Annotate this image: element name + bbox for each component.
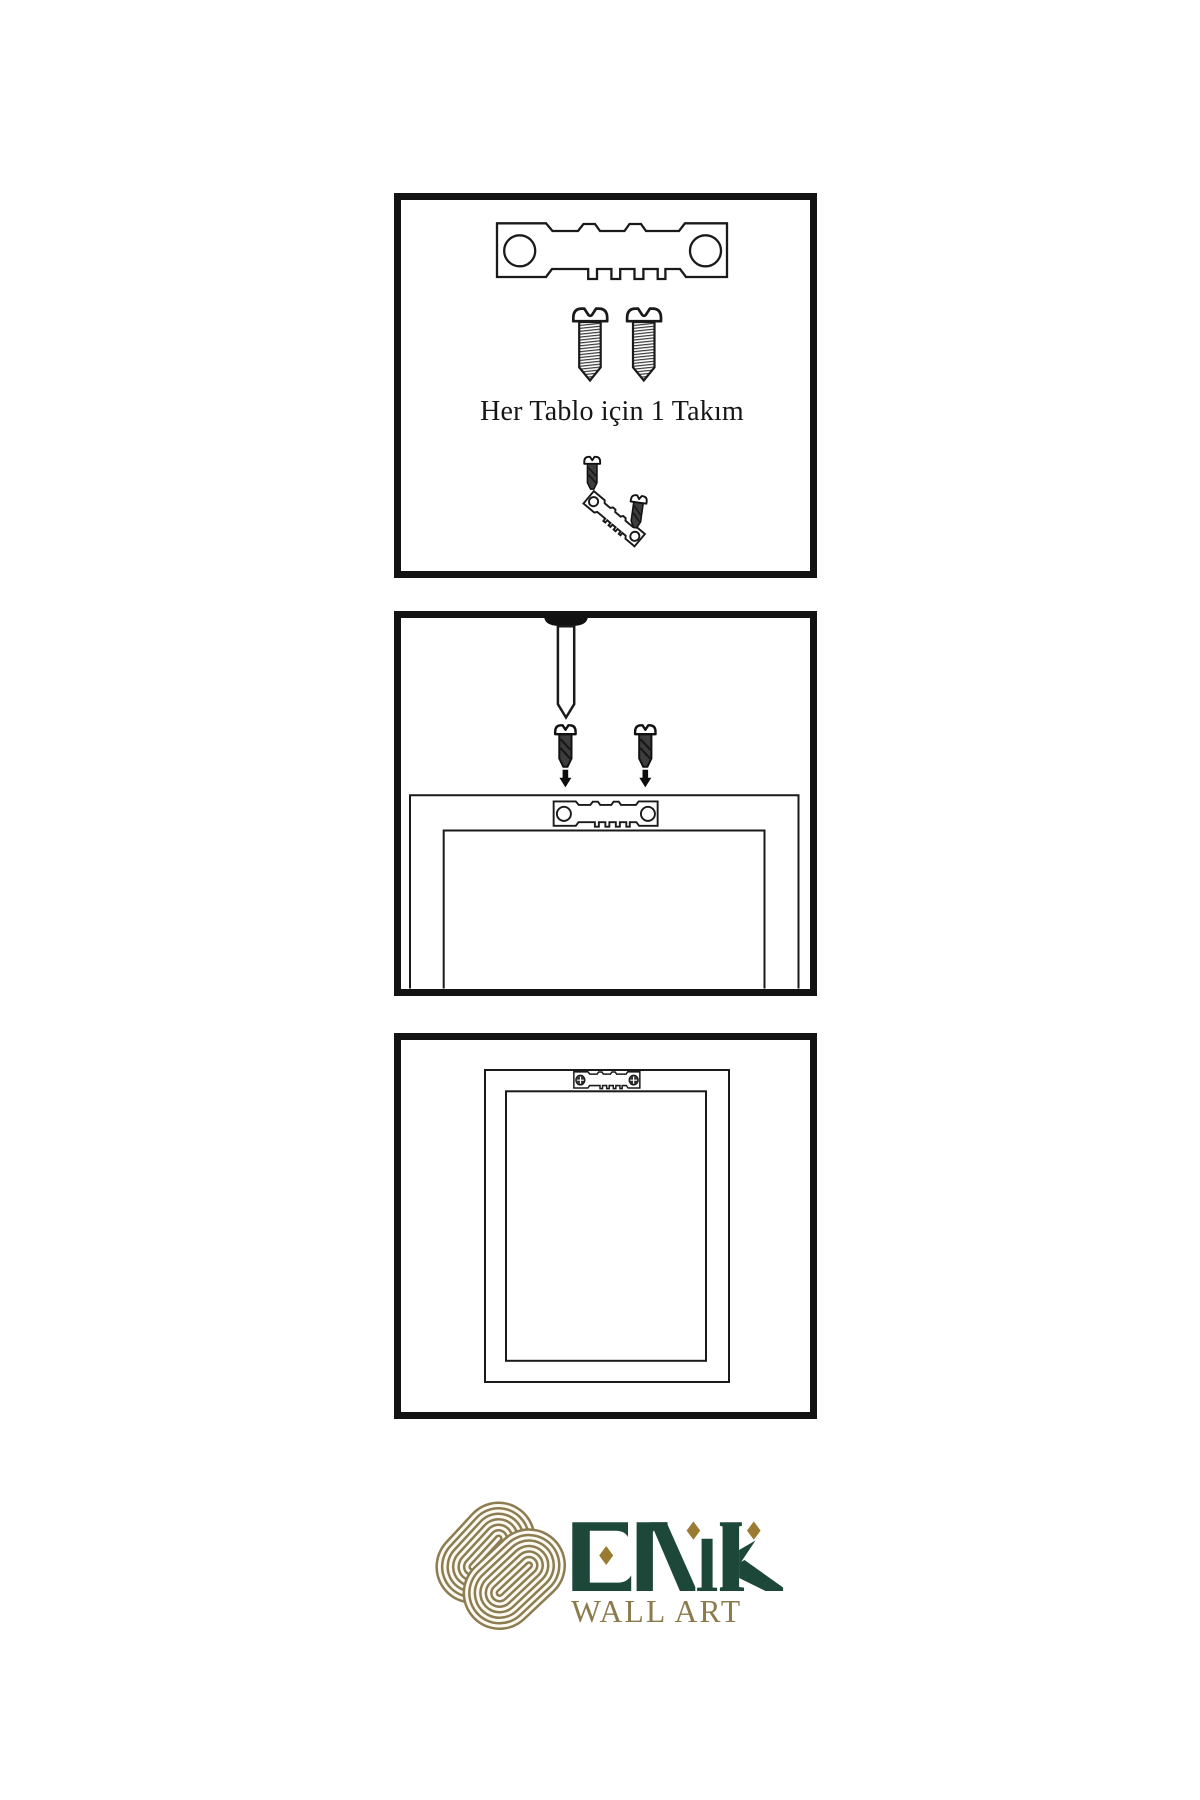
- svg-text:Her Tablo için 1 Takım: Her Tablo için 1 Takım: [480, 396, 744, 427]
- svg-text:WALL ART: WALL ART: [571, 1594, 742, 1629]
